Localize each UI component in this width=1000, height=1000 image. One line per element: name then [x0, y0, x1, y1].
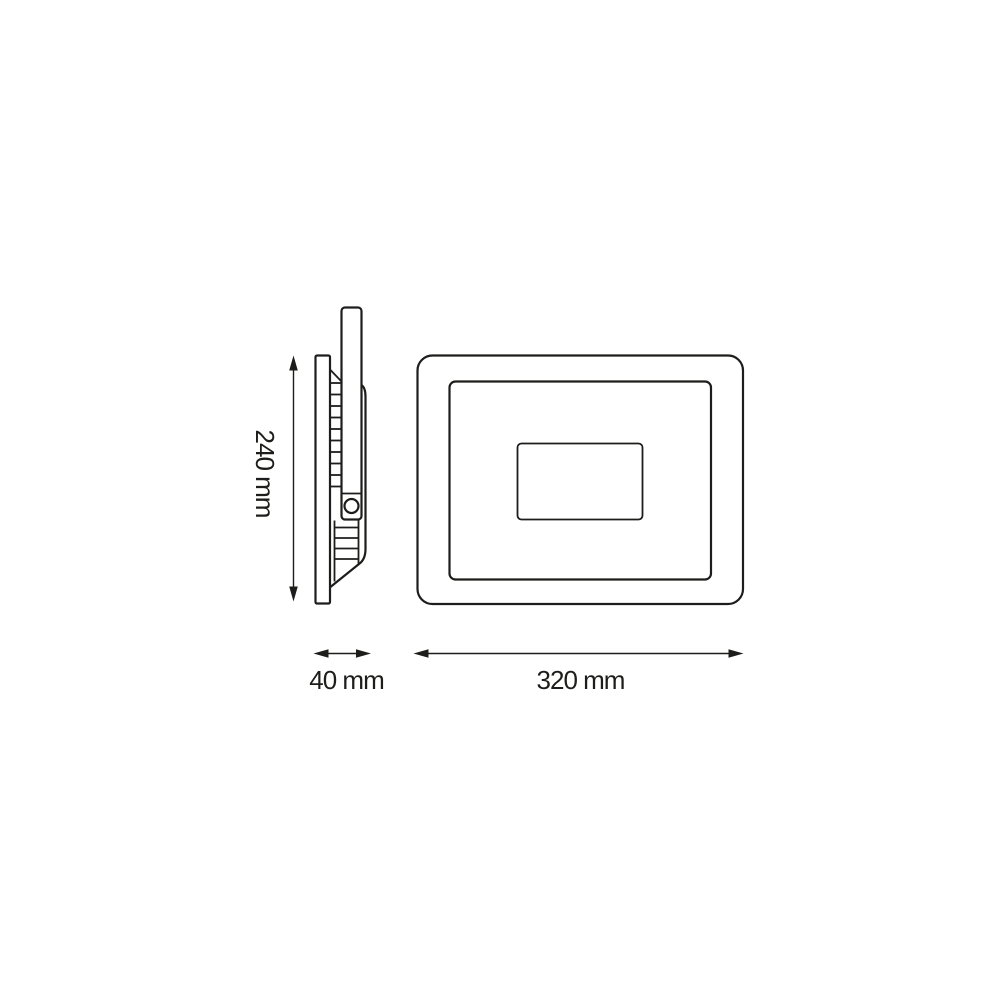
depth-dimension: 40 mm	[309, 649, 383, 695]
arrow-down-icon	[289, 587, 298, 602]
height-dimension: 240 mm	[250, 356, 298, 602]
side-view	[316, 308, 366, 604]
arrow-right-icon	[356, 649, 371, 658]
arrow-up-icon	[289, 356, 298, 371]
front-glass-bezel	[450, 382, 712, 580]
width-dimension: 320 mm	[414, 649, 744, 695]
front-led-module	[518, 444, 643, 520]
height-dimension-label: 240 mm	[250, 430, 280, 518]
side-heatsink-fins-upper	[330, 370, 342, 487]
side-front-panel	[316, 356, 331, 604]
width-dimension-label: 320 mm	[537, 665, 625, 695]
side-heatsink-fins-lower	[335, 521, 359, 582]
side-pivot-screw	[345, 499, 359, 513]
arrow-left-icon	[414, 649, 429, 658]
side-mounting-bracket	[342, 308, 362, 520]
arrow-right-icon	[729, 649, 744, 658]
front-view	[418, 356, 744, 605]
drawing-svg: 240 mm 40 mm 320 mm	[0, 0, 1000, 1000]
front-outer-frame	[418, 356, 744, 605]
arrow-left-icon	[314, 649, 329, 658]
dimension-drawing: 240 mm 40 mm 320 mm	[0, 0, 1000, 1000]
depth-dimension-label: 40 mm	[309, 665, 383, 695]
